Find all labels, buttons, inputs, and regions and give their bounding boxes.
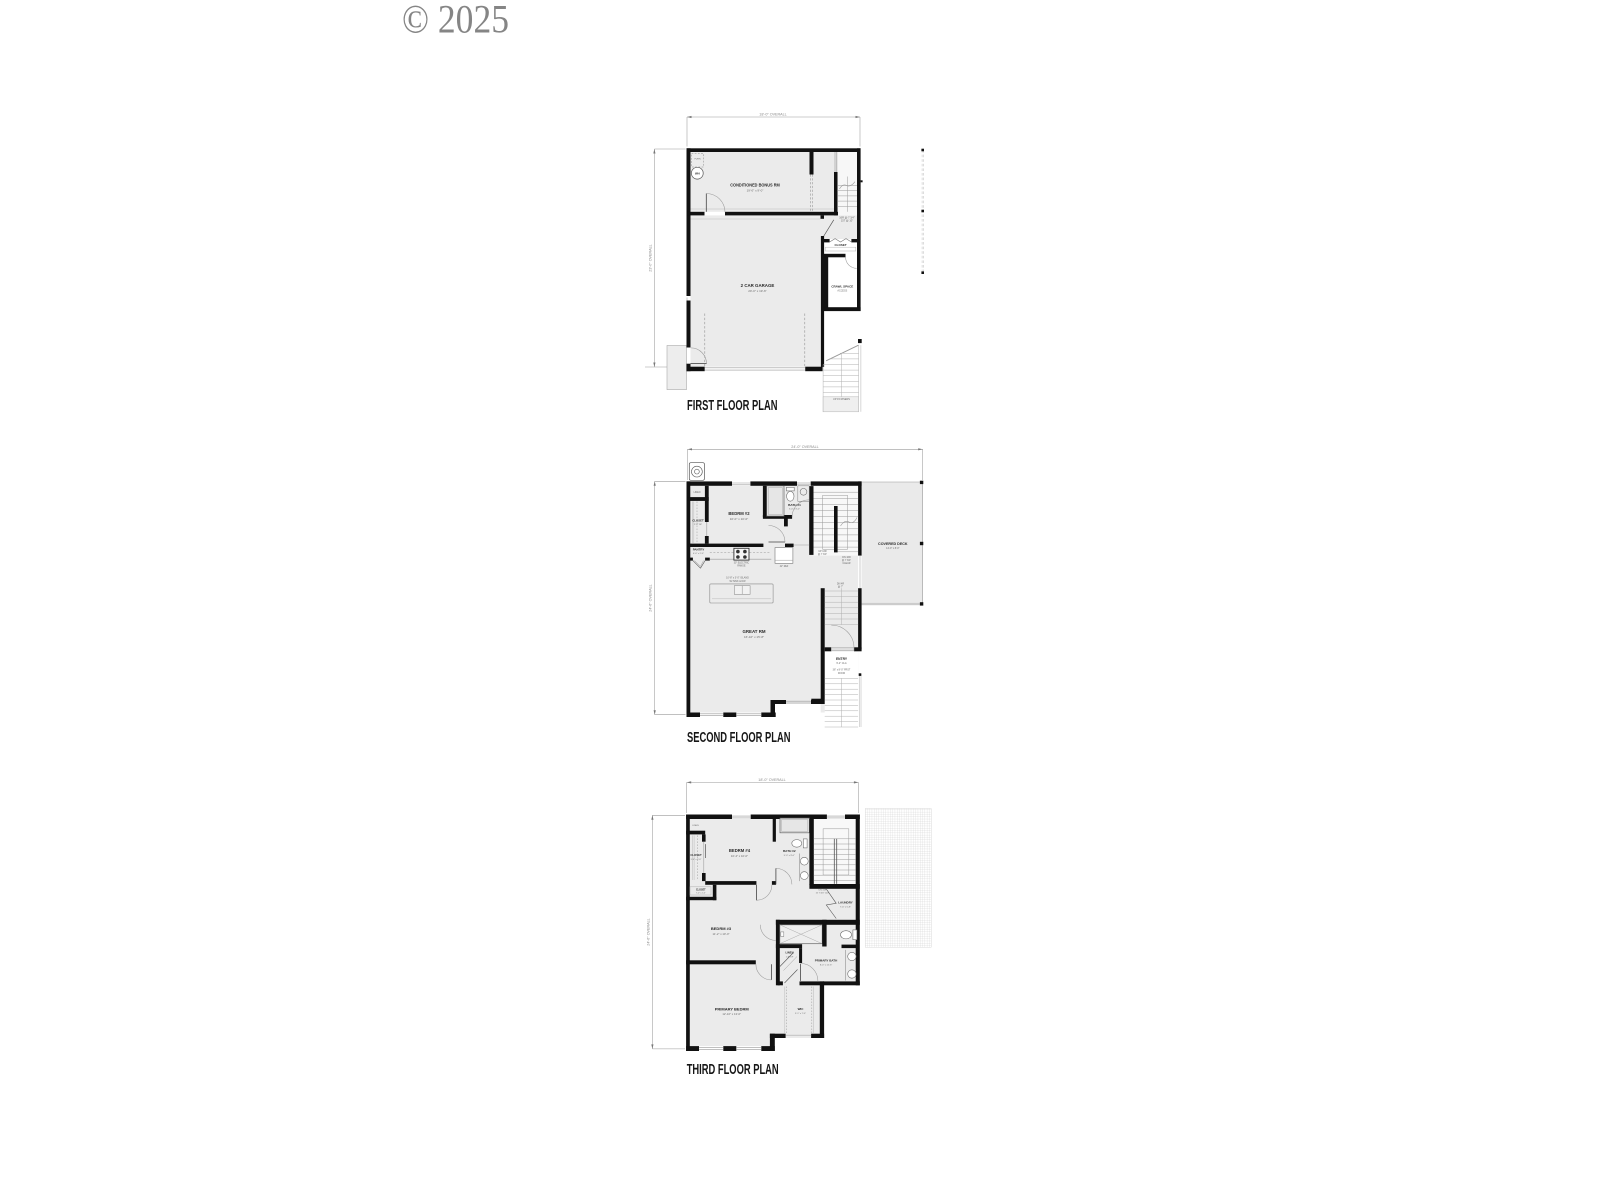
svg-text:FIRST FLOOR PLAN: FIRST FLOOR PLAN <box>687 398 778 414</box>
svg-text:5'-0" x 9'-0": 5'-0" x 9'-0" <box>784 855 795 857</box>
svg-text:PRIMARY BATH: PRIMARY BATH <box>815 958 838 962</box>
svg-text:THIRD FLOOR PLAN: THIRD FLOOR PLAN <box>687 1062 779 1078</box>
svg-text:CLOSET: CLOSET <box>690 853 702 857</box>
svg-text:10'-0" x 10'-0": 10'-0" x 10'-0" <box>730 517 748 521</box>
svg-text:5'-1" x 7'-0": 5'-1" x 7'-0" <box>795 1013 806 1015</box>
svg-text:18'-0" OVERALL: 18'-0" OVERALL <box>758 778 785 782</box>
svg-text:11'-2" x 10'-0": 11'-2" x 10'-0" <box>713 932 730 936</box>
svg-text:5'-0" x 8'-0": 5'-0" x 8'-0" <box>789 509 800 511</box>
svg-text:BATH #2: BATH #2 <box>783 849 796 853</box>
svg-text:14'-0" x 8'-0": 14'-0" x 8'-0" <box>886 547 900 550</box>
svg-text:CLOSET: CLOSET <box>696 889 706 892</box>
svg-text:FURN: FURN <box>694 159 700 161</box>
svg-text:5'-0" x 2'-0": 5'-0" x 2'-0" <box>691 859 702 861</box>
svg-text:DN 16R: DN 16R <box>819 890 827 892</box>
svg-text:19'-0" x 9'-0": 19'-0" x 9'-0" <box>747 188 764 192</box>
svg-text:16'-10" x 15'-8": 16'-10" x 15'-8" <box>744 635 764 639</box>
svg-text:10'-4" x 10'-0": 10'-4" x 10'-0" <box>731 854 748 858</box>
svg-text:2'-0" DP: 2'-0" DP <box>694 524 703 526</box>
svg-text:CONDITIONED BONUS RM: CONDITIONED BONUS RM <box>730 182 780 187</box>
svg-text:© 2025: © 2025 <box>402 0 509 42</box>
svg-text:8'-0" x 12'-6": 8'-0" x 12'-6" <box>820 965 832 967</box>
svg-text:2 CAR GARAGE: 2 CAR GARAGE <box>741 283 775 288</box>
svg-text:RANGE: RANGE <box>737 565 746 568</box>
svg-text:PRIMARY BEDRM: PRIMARY BEDRM <box>715 1006 750 1011</box>
svg-text:CRAWL SPACE: CRAWL SPACE <box>831 285 853 289</box>
svg-text:15T @ 10": 15T @ 10" <box>841 219 853 223</box>
svg-text:BEDRM #4: BEDRM #4 <box>729 848 751 853</box>
svg-text:LAUNDRY: LAUNDRY <box>838 901 853 905</box>
svg-text:LINEN: LINEN <box>692 825 699 827</box>
svg-text:24'-6" OVERALL: 24'-6" OVERALL <box>646 918 650 945</box>
svg-text:20'-0" x 19'-6": 20'-0" x 19'-6" <box>748 289 766 293</box>
svg-text:@ 7": @ 7" <box>838 585 843 588</box>
svg-text:BEDRM #3: BEDRM #3 <box>711 926 732 931</box>
svg-text:12'-10" x 13'-0": 12'-10" x 13'-0" <box>722 1012 741 1016</box>
svg-text:@ 7 3/4": @ 7 3/4" <box>818 553 827 556</box>
svg-text:7'-6" x 5'-8": 7'-6" x 5'-8" <box>840 907 851 909</box>
svg-text:@ 7 3/4" CLR: @ 7 3/4" CLR <box>816 892 830 894</box>
svg-text:24'-6" OVERALL: 24'-6" OVERALL <box>649 584 653 611</box>
svg-text:18'-0" OVERALL: 18'-0" OVERALL <box>759 113 786 117</box>
svg-text:42" REF: 42" REF <box>780 566 789 568</box>
svg-text:W/ SINK & DW: W/ SINK & DW <box>729 580 746 583</box>
svg-text:9'-2" CLG: 9'-2" CLG <box>836 662 846 665</box>
svg-text:ENTRY: ENTRY <box>836 657 848 661</box>
svg-text:1'-8" DP: 1'-8" DP <box>786 956 794 958</box>
svg-text:24'-0" OVERALL: 24'-0" OVERALL <box>791 445 818 449</box>
svg-text:DOOR: DOOR <box>838 672 845 675</box>
svg-text:23'-0" OVERALL: 23'-0" OVERALL <box>648 244 652 271</box>
svg-text:COVERED DECK: COVERED DECK <box>878 542 908 546</box>
svg-text:ACCESS: ACCESS <box>837 290 847 293</box>
svg-text:LINEN: LINEN <box>785 951 793 955</box>
svg-text:CLOSET: CLOSET <box>835 243 847 247</box>
svg-text:WH: WH <box>695 171 700 175</box>
svg-text:BEDRM #2: BEDRM #2 <box>728 511 750 516</box>
svg-text:PANTRY: PANTRY <box>693 548 705 552</box>
svg-text:SECOND FLOOR PLAN: SECOND FLOOR PLAN <box>687 730 791 746</box>
svg-text:GREAT RM: GREAT RM <box>742 629 765 634</box>
svg-text:CLOSET: CLOSET <box>692 518 704 522</box>
svg-text:CLEAR: CLEAR <box>843 562 851 565</box>
svg-text:30" ELECTRIC: 30" ELECTRIC <box>734 563 750 565</box>
svg-text:7'-0" x 2'-0": 7'-0" x 2'-0" <box>696 893 706 895</box>
svg-text:4'-0" x 2'-0": 4'-0" x 2'-0" <box>693 553 704 555</box>
svg-text:LINEN: LINEN <box>694 492 701 494</box>
svg-text:UP 15 RISERS: UP 15 RISERS <box>833 398 850 401</box>
svg-text:BATH #1: BATH #1 <box>788 503 801 507</box>
svg-text:WIC: WIC <box>798 1007 805 1011</box>
